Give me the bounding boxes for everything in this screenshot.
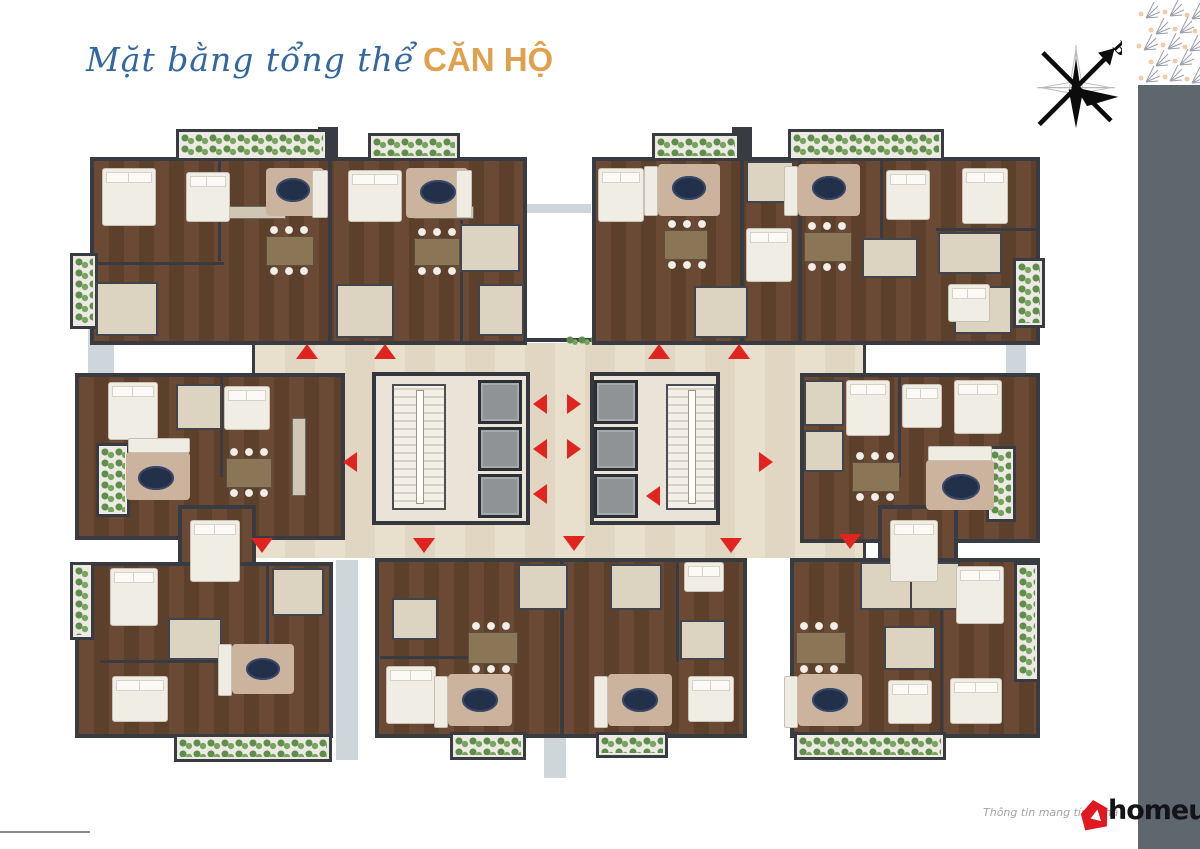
interior-wall — [94, 262, 224, 265]
entry-arrow-up — [648, 344, 670, 359]
elevator-arrow-right — [567, 439, 581, 459]
balcony — [176, 129, 328, 161]
elevator-cab — [478, 380, 522, 424]
bed — [110, 568, 158, 626]
bed — [886, 170, 930, 220]
balcony-plants — [1019, 567, 1035, 677]
bathroom-room — [272, 568, 324, 616]
entry-arrow-left — [343, 452, 357, 472]
balcony — [70, 253, 98, 329]
bed — [224, 386, 270, 430]
staircase — [392, 384, 446, 510]
bed — [956, 566, 1004, 624]
dining-table — [414, 238, 460, 266]
bathroom-room — [680, 620, 726, 660]
entry-arrow-up — [728, 344, 750, 359]
sofa — [928, 446, 992, 461]
elevator-cab — [594, 427, 638, 471]
elevator-arrow-right — [567, 394, 581, 414]
oval-rug — [276, 178, 310, 202]
slab-strip — [527, 204, 591, 213]
bed — [190, 520, 240, 582]
balcony-plants — [793, 134, 939, 156]
bathroom-room — [610, 564, 662, 610]
entry-arrow-down — [413, 538, 435, 553]
interior-wall — [328, 161, 332, 341]
footer-divider-line — [0, 831, 90, 833]
balcony — [1013, 258, 1045, 328]
bed — [598, 168, 644, 222]
bed — [902, 384, 942, 428]
entry-arrow-up — [374, 344, 396, 359]
sofa — [784, 676, 798, 728]
balcony-plants — [179, 739, 327, 757]
balcony — [174, 734, 332, 762]
kitchen-counter — [292, 418, 306, 496]
page: Mặt bằng tổng thểCĂN HỘ B — [0, 0, 1200, 849]
balcony-plants — [101, 448, 125, 512]
oval-rug — [420, 180, 456, 204]
dining-table — [226, 458, 272, 488]
bed — [746, 228, 792, 282]
sofa — [456, 170, 472, 218]
bathroom-room — [804, 430, 844, 472]
bed — [688, 676, 734, 722]
bathroom-room — [478, 284, 524, 336]
balcony-plants — [75, 258, 93, 324]
entry-arrow-up — [296, 344, 318, 359]
oval-rug — [672, 176, 706, 200]
bathroom-room — [862, 238, 918, 278]
elevator-cab — [594, 380, 638, 424]
sofa — [784, 166, 798, 216]
interior-wall — [100, 660, 220, 663]
bathroom-room — [168, 618, 222, 660]
balcony — [96, 443, 130, 517]
elevator-cab — [594, 474, 638, 518]
balcony-plants — [991, 451, 1011, 517]
bed — [386, 666, 436, 724]
oval-rug — [812, 176, 846, 200]
elevator-cab — [478, 474, 522, 518]
balcony — [368, 133, 460, 161]
balcony-plants — [601, 737, 663, 753]
bed — [102, 168, 156, 226]
dining-table — [266, 236, 314, 266]
bathroom-room — [884, 626, 936, 670]
bed — [112, 676, 168, 722]
sofa — [644, 166, 658, 216]
oval-rug — [462, 688, 498, 712]
bed — [954, 380, 1002, 434]
balcony-plants — [75, 567, 89, 635]
bed — [186, 172, 230, 222]
dining-table — [468, 632, 518, 664]
staircase — [666, 384, 716, 510]
balcony — [788, 129, 944, 161]
interior-wall — [936, 228, 1036, 231]
balcony-plants — [1018, 263, 1040, 323]
balcony-plants — [181, 134, 323, 156]
oval-rug — [812, 688, 848, 712]
bed — [888, 680, 932, 724]
bed — [950, 678, 1002, 724]
entry-arrow-down — [720, 538, 742, 553]
balcony-plants — [455, 737, 521, 755]
sofa — [312, 170, 328, 218]
elevator-arrow-left — [646, 486, 660, 506]
bed — [962, 168, 1008, 224]
floor-plan — [0, 0, 1200, 849]
bed — [348, 170, 402, 222]
balcony — [652, 133, 740, 161]
sofa — [594, 676, 608, 728]
oval-rug — [246, 658, 280, 680]
homeup-house-icon — [1078, 798, 1110, 832]
entry-arrow-down — [839, 534, 861, 549]
oval-rug — [622, 688, 658, 712]
bathroom-room — [804, 380, 844, 426]
balcony — [794, 732, 946, 760]
sofa — [128, 438, 190, 453]
bathroom-room — [694, 286, 748, 338]
oval-rug — [942, 474, 980, 500]
balcony-plants — [799, 737, 941, 755]
dining-table — [664, 230, 708, 260]
bed — [890, 520, 938, 582]
balcony — [450, 732, 526, 760]
entry-arrow-down — [563, 536, 585, 551]
bathroom-room — [518, 564, 568, 610]
bathroom-room — [938, 232, 1002, 274]
dining-table — [796, 632, 846, 664]
balcony-plants — [657, 138, 735, 156]
dining-table — [852, 462, 900, 492]
balcony-plants — [373, 138, 455, 156]
interior-wall — [676, 562, 679, 662]
bed — [684, 562, 724, 592]
bed — [108, 382, 158, 440]
dining-table — [804, 232, 852, 262]
entry-arrow-right — [759, 452, 773, 472]
elevator-arrow-left — [533, 439, 547, 459]
slab-strip — [336, 560, 358, 760]
bathroom-room — [96, 282, 158, 336]
bathroom-room — [392, 598, 438, 640]
homeup-logo-text: homeup — [1108, 795, 1200, 826]
bathroom-room — [176, 384, 222, 430]
sofa — [434, 676, 448, 728]
oval-rug — [138, 466, 174, 490]
bed — [948, 284, 990, 322]
elevator-arrow-left — [533, 484, 547, 504]
balcony — [1014, 562, 1040, 682]
elevator-cab — [478, 427, 522, 471]
bathroom-room — [460, 224, 520, 272]
bathroom-room — [336, 284, 394, 338]
sofa — [218, 644, 232, 696]
entry-arrow-down — [251, 538, 273, 553]
balcony — [596, 732, 668, 758]
balcony — [70, 562, 94, 640]
bed — [846, 380, 890, 436]
elevator-arrow-left — [533, 394, 547, 414]
